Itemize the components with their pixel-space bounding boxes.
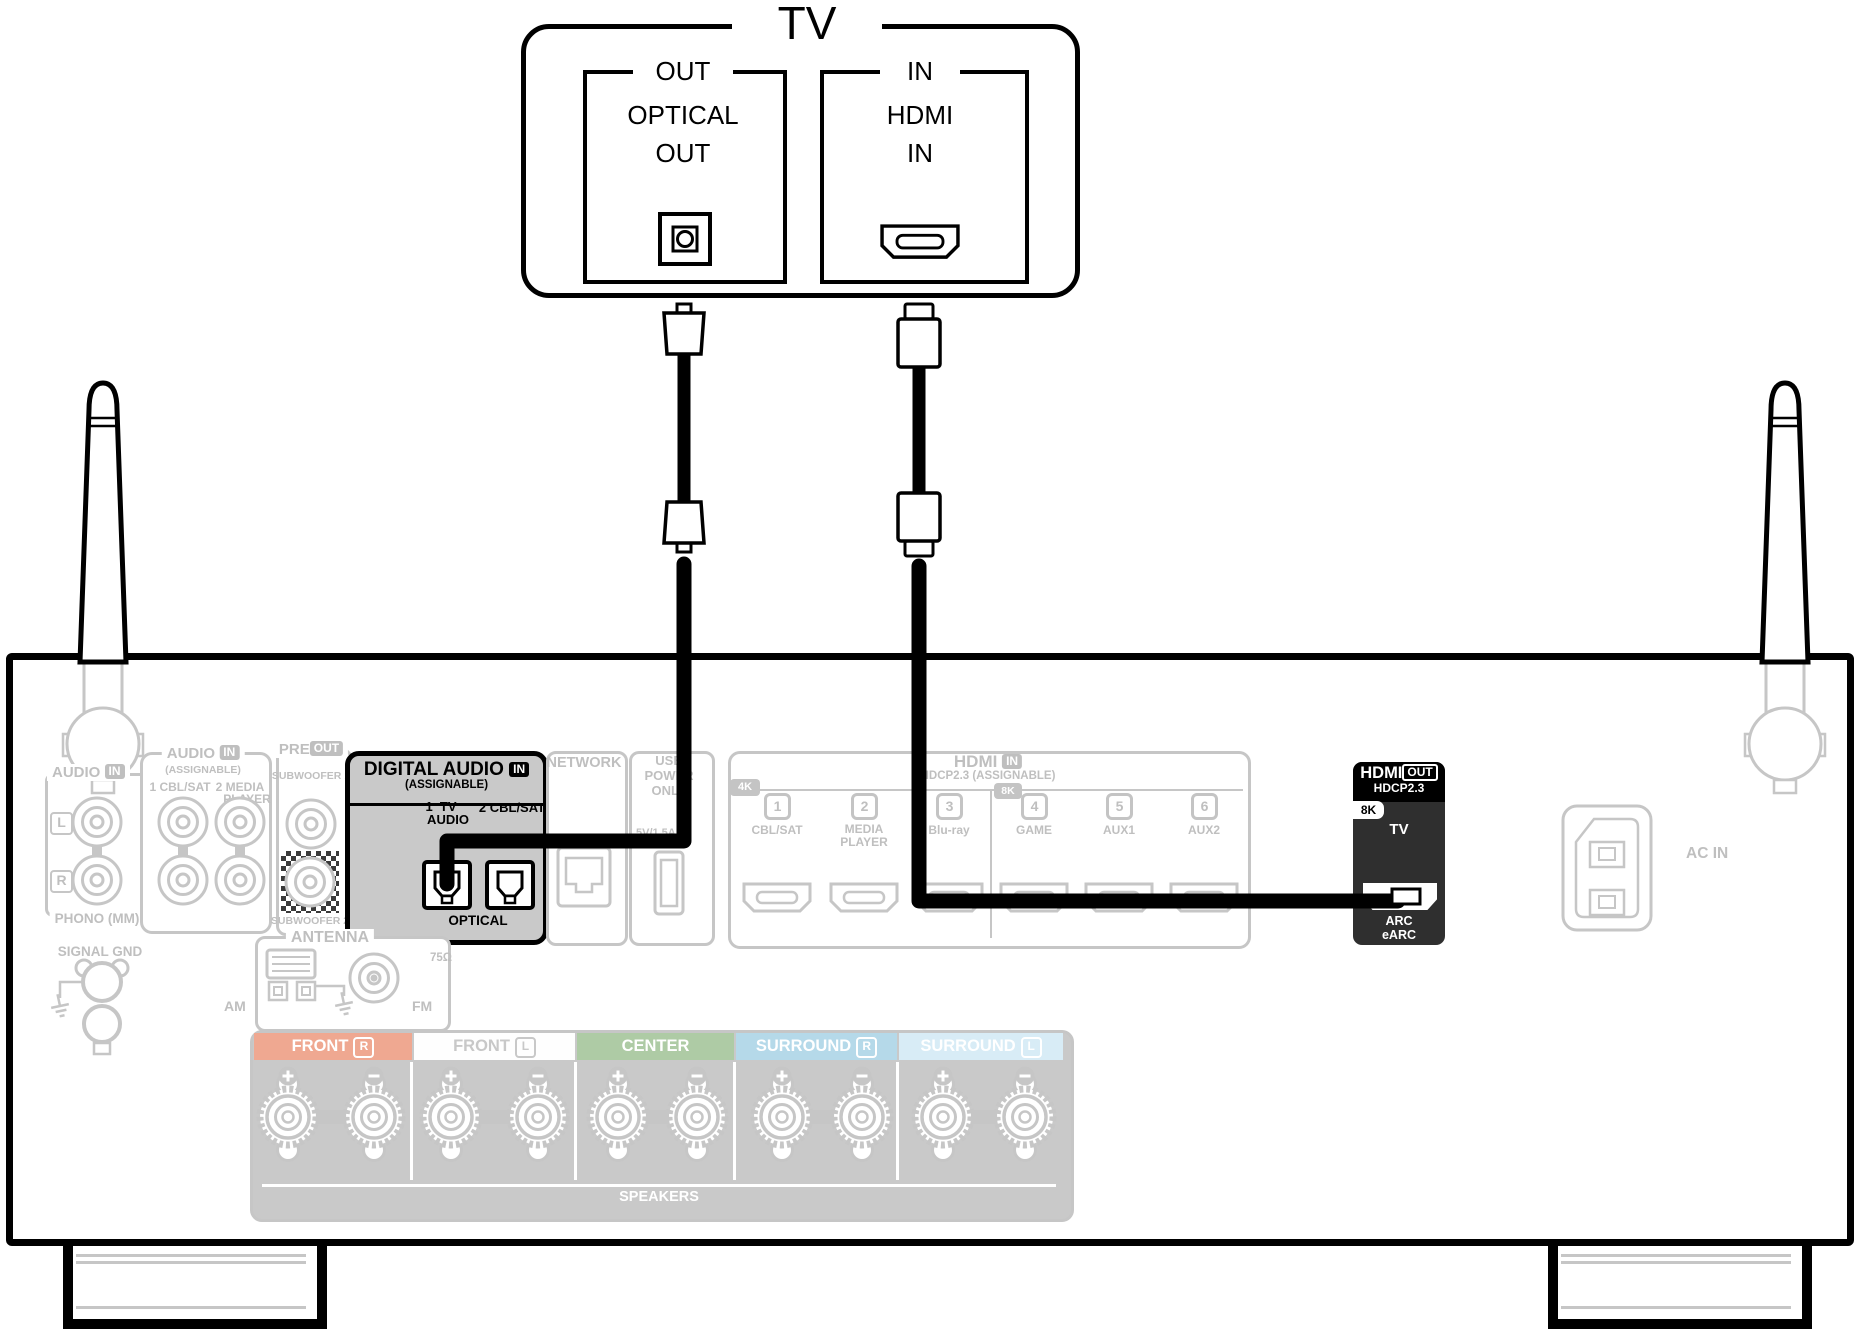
speaker-channel-badge: R — [353, 1037, 374, 1058]
phono-label: AUDIO IN — [47, 764, 130, 781]
phono-right-label: R — [50, 870, 73, 893]
tv-hdmi-group-label: IN — [880, 56, 960, 86]
tv-hdmi-label-line1: HDMI — [887, 100, 953, 131]
hdmi-port-5-label: AUX1 — [1103, 823, 1135, 837]
usb-rating: 5V/1.5A — [636, 826, 689, 839]
left-foot-line-1 — [76, 1254, 306, 1257]
speaker-channel-badge: R — [856, 1037, 877, 1058]
hdmi-4k-badge: 4K — [730, 779, 760, 796]
speaker-channel-name: CENTER — [622, 1037, 690, 1055]
subwoofer1-label: SUBWOOFER 1 — [272, 770, 350, 782]
hdmi-out-arc-line1: ARC — [1385, 914, 1412, 928]
hdmi-out-arc-line2: eARC — [1382, 928, 1416, 942]
pre-out-label: PREOUT — [274, 741, 348, 758]
pre-out-title: PRE — [279, 741, 310, 758]
hdmi-port-1-number: 1 — [764, 793, 791, 820]
speaker-channel-front-l: FRONTL — [414, 1033, 575, 1060]
speaker-divider-4 — [896, 1062, 899, 1180]
network-box — [546, 751, 628, 946]
speaker-channel-name: SURROUND — [920, 1037, 1015, 1055]
right-antenna-rod — [1762, 383, 1808, 662]
hdmi-plug-top — [898, 304, 940, 367]
phono-left-label: L — [50, 812, 73, 835]
usb-label-line3: ONLY — [652, 783, 687, 798]
hdmi-port-6-label: AUX2 — [1188, 823, 1220, 837]
audio-in-subtitle: (ASSIGNABLE) — [165, 764, 241, 776]
hdmi-out-header: HDMIOUT HDCP2.3 — [1353, 762, 1445, 802]
speaker-divider-2 — [574, 1062, 577, 1180]
signal-gnd-label: SIGNAL GND — [58, 944, 143, 959]
antenna-ohm-label: 75Ω — [430, 952, 452, 964]
phono-in-badge: IN — [105, 764, 125, 779]
hdmi-plug-bottom — [898, 493, 940, 556]
speaker-channel-name: FRONT — [292, 1037, 349, 1055]
speaker-channel-badge: L — [515, 1037, 536, 1058]
network-label: NETWORK — [547, 755, 622, 771]
hdmi-in-divider — [990, 791, 992, 938]
subwoofer2-label: SUBWOOFER 2 — [271, 915, 349, 927]
usb-label-line2: POWER — [644, 768, 693, 783]
speakers-separator-line — [262, 1184, 1056, 1187]
hdmi-in-subtitle: HDCP2.3 (ASSIGNABLE) — [921, 770, 1056, 782]
speaker-channel-surround-l: SURROUNDL — [899, 1033, 1063, 1060]
audio-in-title: AUDIO — [167, 745, 215, 762]
right-foot-line-3 — [1561, 1306, 1791, 1309]
right-foot-line-2 — [1561, 1261, 1791, 1264]
hdmi-port-4-number: 4 — [1021, 793, 1048, 820]
tv-optical-group-label: OUT — [633, 56, 733, 86]
hdmi-port-1-label: CBL/SAT — [751, 823, 802, 837]
hdmi-out-8k-badge: 8K — [1353, 801, 1384, 819]
phono-box — [45, 773, 155, 917]
hdmi-port-2-number: 2 — [851, 793, 878, 820]
ac-in-label: AC IN — [1686, 845, 1728, 863]
subwoofer2-zone — [281, 851, 339, 913]
tv-title: TV — [732, 0, 882, 46]
optical-plug-top — [664, 304, 704, 354]
left-foot-line-3 — [76, 1306, 306, 1309]
hdmi-out-badge: OUT — [1402, 764, 1437, 781]
hdmi-port-3-number: 3 — [936, 793, 963, 820]
speaker-channel-badge: L — [1021, 1037, 1042, 1058]
dc-symbol — [679, 826, 689, 836]
hdmi-port-3-label: Blu-ray — [928, 823, 969, 837]
hdmi-port-4-label: GAME — [1016, 823, 1052, 837]
digital-port1-label-line2: AUDIO — [427, 812, 469, 827]
speaker-channel-name: SURROUND — [756, 1037, 851, 1055]
left-foot-line-2 — [76, 1261, 306, 1264]
hdmi-out-title: HDMI — [1360, 764, 1402, 782]
hdmi-port-6-number: 6 — [1191, 793, 1218, 820]
speaker-channel-name: FRONT — [453, 1037, 510, 1055]
tv-optical-label-line2: OUT — [656, 138, 711, 169]
antenna-fm-label: FM — [412, 998, 432, 1014]
digital-audio-title: DIGITAL AUDIO — [364, 759, 504, 780]
speaker-channel-surround-r: SURROUNDR — [736, 1033, 897, 1060]
audio-in-col2-label-line2: PLAYER — [223, 792, 271, 806]
digital-port2-label: 2 CBL/SAT — [479, 800, 545, 815]
speaker-divider-1 — [410, 1062, 413, 1180]
hdmi-port-2-label: MEDIA PLAYER — [829, 823, 899, 848]
usb-label-line1: USB — [655, 753, 682, 768]
hdmi-port-5-number: 5 — [1106, 793, 1133, 820]
hdmi-in-badge: IN — [1002, 754, 1022, 769]
hdmi-in-title: HDMI — [954, 752, 997, 771]
optical-plug-bottom — [664, 502, 704, 552]
phono-title: AUDIO — [52, 764, 100, 781]
speaker-divider-3 — [733, 1062, 736, 1180]
antenna-title: ANTENNA — [286, 929, 374, 947]
connection-diagram: TV OUT OPTICAL OUT IN HDMI IN AUDIO IN L… — [0, 0, 1860, 1329]
audio-in-badge: IN — [219, 745, 239, 760]
tv-optical-label-line1: OPTICAL — [627, 100, 738, 131]
speakers-caption: SPEAKERS — [619, 1189, 699, 1205]
phono-caption: PHONO (MM) — [50, 911, 145, 926]
speaker-channel-front-r: FRONTR — [254, 1033, 412, 1060]
digital-audio-box: DIGITAL AUDIO IN (ASSIGNABLE) — [345, 751, 548, 945]
hdmi-in-header: HDMI IN — [954, 752, 1022, 772]
hdmi-in-header-line — [730, 789, 1243, 791]
hdmi-8k-badge: 8K — [994, 783, 1022, 799]
antenna-am-label: AM — [224, 998, 246, 1014]
hdmi-out-hdcp: HDCP2.3 — [1353, 781, 1445, 795]
hdmi-out-source-label: TV — [1389, 821, 1408, 838]
pre-out-badge: OUT — [310, 741, 343, 756]
digital-optical-caption: OPTICAL — [448, 913, 507, 928]
right-foot-line-1 — [1561, 1254, 1791, 1257]
digital-audio-badge: IN — [509, 762, 529, 777]
audio-in-label: AUDIO IN — [162, 745, 245, 762]
left-antenna-rod — [80, 383, 126, 662]
tv-hdmi-label-line2: IN — [907, 138, 933, 169]
left-foot — [63, 1246, 327, 1329]
speaker-channel-center: CENTER — [577, 1033, 734, 1060]
audio-in-col1-label: 1 CBL/SAT — [149, 780, 210, 794]
antenna-box — [255, 936, 451, 1032]
right-foot — [1548, 1246, 1812, 1329]
